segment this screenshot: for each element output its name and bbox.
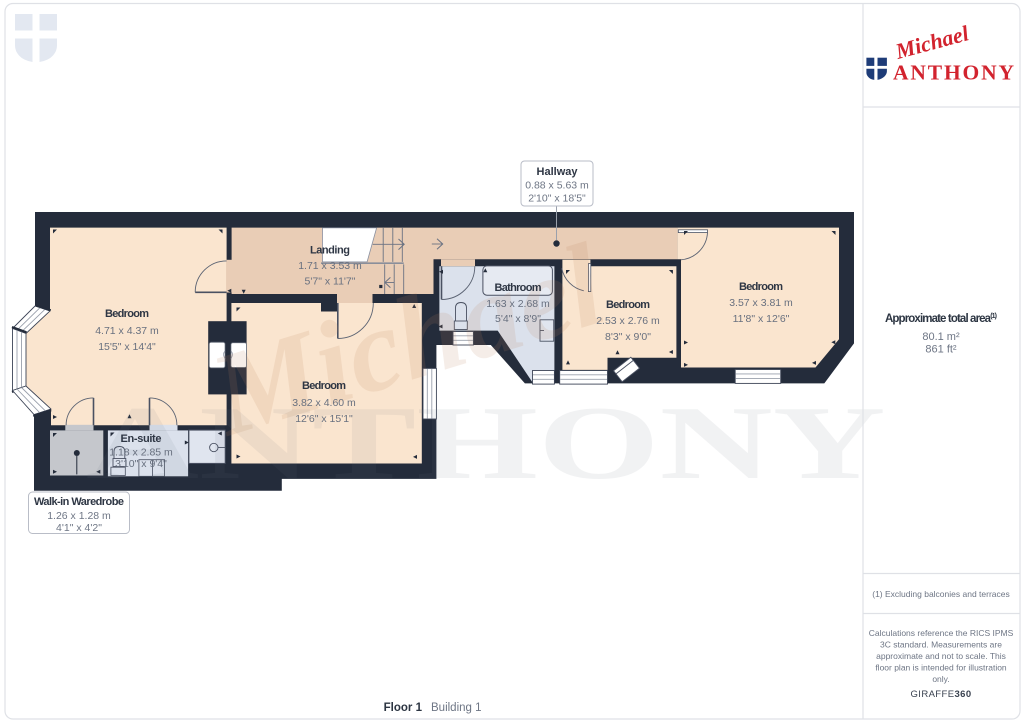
svg-text:Floor 1: Floor 1 (384, 702, 423, 714)
svg-text:GIRAFFE360: GIRAFFE360 (910, 689, 971, 700)
svg-text:Calculations reference the RIC: Calculations reference the RICS IPMS (869, 628, 1014, 638)
svg-text:3.57 x 3.81 m: 3.57 x 3.81 m (729, 297, 793, 309)
svg-text:1.71 x 3.53 m: 1.71 x 3.53 m (298, 260, 362, 272)
svg-text:1.63 x 2.68 m: 1.63 x 2.68 m (486, 298, 550, 310)
svg-text:ANTHONY: ANTHONY (893, 61, 1014, 85)
svg-text:3.82 x 4.60 m: 3.82 x 4.60 m (292, 397, 356, 409)
svg-text:1.18 x 2.85 m: 1.18 x 2.85 m (109, 447, 173, 459)
svg-text:4'1" x 4'2": 4'1" x 4'2" (56, 522, 102, 534)
svg-text:Landing: Landing (310, 245, 350, 257)
svg-text:floor plan is intended for ill: floor plan is intended for illustration (875, 663, 1007, 673)
svg-text:1.26 x 1.28 m: 1.26 x 1.28 m (47, 510, 111, 522)
svg-text:Hallway: Hallway (537, 166, 579, 178)
svg-text:Building 1: Building 1 (431, 702, 482, 714)
svg-text:11'8" x 12'6": 11'8" x 12'6" (733, 313, 790, 325)
svg-text:15'5" x 14'4": 15'5" x 14'4" (98, 341, 156, 353)
svg-text:5'7" x 11'7": 5'7" x 11'7" (305, 276, 356, 288)
svg-text:Bedroom: Bedroom (302, 380, 346, 392)
svg-text:only.: only. (932, 674, 949, 684)
svg-text:2.53 x 2.76 m: 2.53 x 2.76 m (596, 315, 660, 327)
svg-text:5'4" x 8'9": 5'4" x 8'9" (495, 313, 541, 325)
svg-text:3'10" x 9'4": 3'10" x 9'4" (115, 458, 167, 470)
svg-text:Approximate total area(1): Approximate total area(1) (885, 313, 997, 325)
svg-text:12'6" x 15'1": 12'6" x 15'1" (295, 413, 353, 425)
svg-text:2'10" x 18'5": 2'10" x 18'5" (528, 193, 586, 205)
svg-text:4.71 x 4.37 m: 4.71 x 4.37 m (95, 325, 159, 337)
svg-text:8'3" x 9'0": 8'3" x 9'0" (605, 331, 651, 343)
svg-text:Bathroom: Bathroom (495, 282, 542, 294)
svg-text:Bedroom: Bedroom (105, 308, 149, 320)
svg-text:Walk-in Waredrobe: Walk-in Waredrobe (34, 496, 124, 508)
svg-text:80.1 m²: 80.1 m² (922, 331, 960, 343)
svg-text:0.88 x 5.63 m: 0.88 x 5.63 m (525, 180, 589, 192)
svg-text:861 ft²: 861 ft² (925, 344, 957, 356)
svg-text:Bedroom: Bedroom (606, 299, 650, 311)
svg-text:En-suite: En-suite (121, 433, 162, 445)
svg-text:Michael: Michael (892, 20, 972, 64)
svg-text:Bedroom: Bedroom (739, 281, 783, 293)
svg-text:3C standard. Measurements are: 3C standard. Measurements are (880, 640, 1002, 650)
svg-text:approximate and not to scale.: approximate and not to scale. This (876, 651, 1006, 661)
svg-text:(1) Excluding balconies and te: (1) Excluding balconies and terraces (872, 589, 1010, 599)
svg-text:ANTHONY: ANTHONY (86, 384, 886, 501)
